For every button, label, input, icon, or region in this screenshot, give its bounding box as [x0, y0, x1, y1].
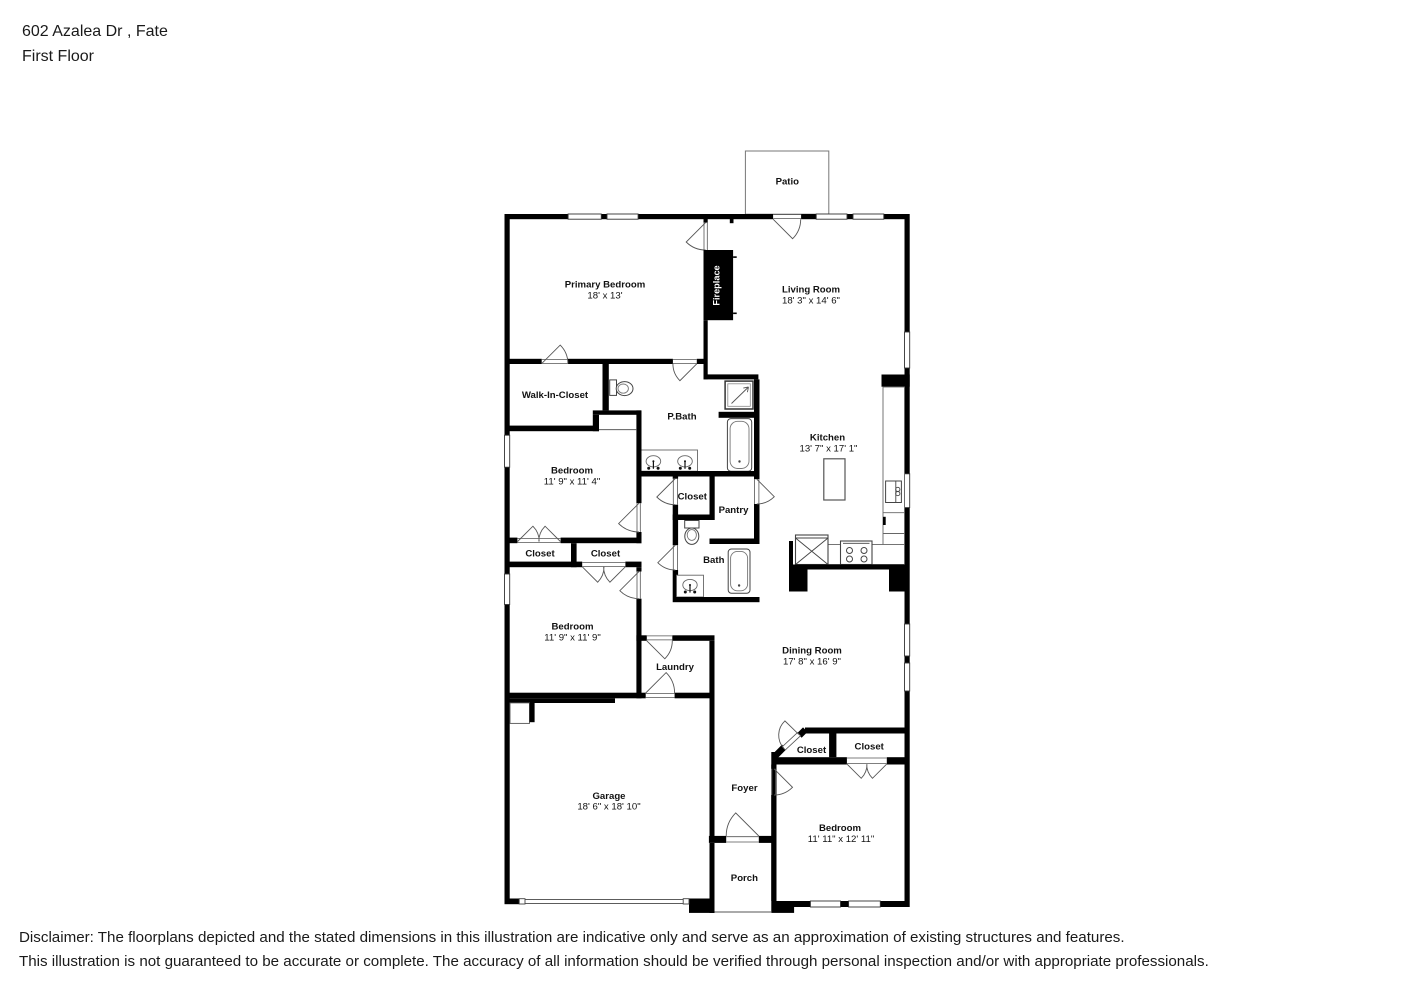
svg-text:Bath: Bath	[703, 555, 724, 566]
svg-text:Bedroom: Bedroom	[551, 622, 593, 633]
svg-text:Bedroom: Bedroom	[819, 823, 861, 834]
svg-text:Laundry: Laundry	[656, 662, 695, 673]
svg-text:Foyer: Foyer	[731, 783, 757, 794]
svg-text:13' 7" x 17' 1": 13' 7" x 17' 1"	[800, 444, 858, 455]
svg-text:11' 9" x 11' 4": 11' 9" x 11' 4"	[544, 477, 601, 488]
svg-text:18' 6" x 18' 10": 18' 6" x 18' 10"	[577, 802, 640, 813]
svg-text:11' 11" x 12' 11": 11' 11" x 12' 11"	[808, 834, 874, 845]
svg-text:Dining Room: Dining Room	[782, 646, 842, 657]
svg-text:Closet: Closet	[797, 745, 827, 756]
svg-text:18' x 13': 18' x 13'	[587, 291, 622, 302]
svg-text:Closet: Closet	[855, 742, 885, 753]
svg-text:18' 3" x 14' 6": 18' 3" x 14' 6"	[782, 296, 840, 307]
svg-text:Closet: Closet	[525, 549, 555, 560]
svg-text:Closet: Closet	[678, 492, 708, 503]
svg-text:Patio: Patio	[776, 177, 800, 188]
svg-text:P.Bath: P.Bath	[667, 412, 696, 423]
svg-text:11' 9" x 11' 9": 11' 9" x 11' 9"	[544, 633, 601, 644]
svg-text:Closet: Closet	[591, 549, 621, 560]
svg-text:Garage: Garage	[592, 791, 625, 802]
svg-text:Porch: Porch	[731, 873, 758, 884]
svg-text:Pantry: Pantry	[719, 505, 750, 516]
svg-text:Living Room: Living Room	[782, 285, 840, 296]
svg-text:Fireplace: Fireplace	[712, 265, 722, 305]
svg-text:Walk-In-Closet: Walk-In-Closet	[522, 390, 589, 401]
svg-text:Kitchen: Kitchen	[810, 433, 845, 444]
svg-text:Primary Bedroom: Primary Bedroom	[565, 280, 646, 291]
svg-text:Bedroom: Bedroom	[551, 466, 593, 477]
svg-text:17' 8" x 16' 9": 17' 8" x 16' 9"	[783, 657, 841, 668]
